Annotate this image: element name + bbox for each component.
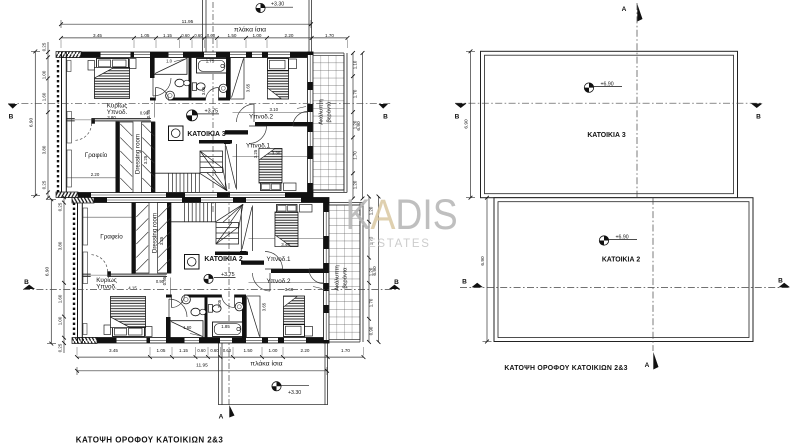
svg-text:3.65: 3.65 bbox=[246, 83, 251, 92]
svg-text:6.90: 6.90 bbox=[372, 266, 378, 276]
svg-text:3.25: 3.25 bbox=[159, 236, 164, 245]
svg-text:ΚΑΤΟΨΗ ΟΡΟΦΟΥ ΚΑΤΟΙΚΙΩΝ 2&3: ΚΑΤΟΨΗ ΟΡΟΦΟΥ ΚΑΤΟΙΚΙΩΝ 2&3 bbox=[76, 436, 224, 445]
svg-text:3.30: 3.30 bbox=[272, 151, 281, 156]
svg-text:A: A bbox=[219, 414, 224, 421]
svg-text:2.20: 2.20 bbox=[91, 172, 100, 177]
svg-text:1.70: 1.70 bbox=[341, 348, 350, 353]
svg-text:B: B bbox=[462, 279, 467, 286]
svg-text:Υπνοδ.2: Υπνοδ.2 bbox=[267, 278, 291, 285]
svg-text:B: B bbox=[394, 279, 399, 286]
svg-text:1.00: 1.00 bbox=[269, 348, 278, 353]
svg-text:3.80: 3.80 bbox=[42, 145, 47, 154]
svg-text:1.60: 1.60 bbox=[42, 92, 47, 101]
svg-text:ESTATES: ESTATES bbox=[368, 238, 431, 250]
svg-text:0.60: 0.60 bbox=[223, 348, 232, 353]
svg-text:B: B bbox=[9, 114, 14, 121]
svg-text:0.60: 0.60 bbox=[181, 33, 190, 38]
svg-text:Ακάλυπτη: Ακάλυπτη bbox=[334, 265, 341, 291]
svg-text:0.90: 0.90 bbox=[369, 326, 374, 335]
svg-text:3.80: 3.80 bbox=[107, 115, 116, 120]
svg-text:2.20: 2.20 bbox=[301, 348, 310, 353]
svg-text:ΚΑΤΟΙΚΙΑ 3: ΚΑΤΟΙΚΙΑ 3 bbox=[187, 131, 226, 138]
svg-text:A: A bbox=[622, 6, 627, 13]
svg-text:1.05: 1.05 bbox=[141, 33, 150, 38]
svg-text:1.85: 1.85 bbox=[221, 324, 230, 329]
svg-text:1.50: 1.50 bbox=[228, 33, 237, 38]
svg-text:B: B bbox=[455, 114, 460, 121]
svg-text:0.90: 0.90 bbox=[140, 111, 149, 116]
svg-text:Ακάλυπτη: Ακάλυπτη bbox=[318, 99, 325, 125]
svg-text:πλάκα ίσια: πλάκα ίσια bbox=[234, 26, 266, 34]
svg-text:3.25: 3.25 bbox=[253, 149, 258, 158]
svg-text:2.20: 2.20 bbox=[285, 33, 294, 38]
svg-text:1.0: 1.0 bbox=[166, 58, 172, 63]
svg-text:Γραφείο: Γραφείο bbox=[85, 151, 108, 159]
svg-text:+3.75: +3.75 bbox=[221, 272, 235, 278]
svg-text:1.15: 1.15 bbox=[163, 33, 172, 38]
svg-text:1.75: 1.75 bbox=[206, 59, 215, 64]
svg-text:1.70: 1.70 bbox=[353, 151, 358, 160]
svg-text:0.25: 0.25 bbox=[58, 202, 63, 211]
svg-text:1.20: 1.20 bbox=[353, 180, 358, 189]
svg-text:6.90: 6.90 bbox=[480, 256, 486, 266]
svg-text:βεράντα: βεράντα bbox=[342, 267, 349, 289]
svg-text:0.25: 0.25 bbox=[42, 42, 47, 51]
svg-text:0.90: 0.90 bbox=[156, 279, 165, 284]
svg-text:ΚΑΤΟΨΗ ΟΡΟΦΟΥ ΚΑΤΟΙΚΙΩΝ 2&3: ΚΑΤΟΨΗ ΟΡΟΦΟΥ ΚΑΤΟΙΚΙΩΝ 2&3 bbox=[504, 365, 627, 372]
svg-text:B: B bbox=[778, 278, 783, 285]
svg-text:6.90: 6.90 bbox=[29, 118, 35, 128]
svg-text:1.70: 1.70 bbox=[353, 89, 358, 98]
svg-text:Γραφείο: Γραφείο bbox=[100, 233, 123, 241]
svg-text:1.00: 1.00 bbox=[253, 33, 262, 38]
svg-text:11.95: 11.95 bbox=[196, 363, 208, 369]
svg-text:+3.30: +3.30 bbox=[271, 2, 284, 8]
svg-text:B: B bbox=[24, 279, 29, 286]
svg-text:1.50: 1.50 bbox=[244, 348, 253, 353]
svg-text:1.60: 1.60 bbox=[58, 294, 63, 303]
svg-text:1.00: 1.00 bbox=[58, 316, 63, 325]
svg-text:+3.75: +3.75 bbox=[205, 109, 219, 115]
svg-text:3.45: 3.45 bbox=[109, 348, 118, 353]
svg-text:A: A bbox=[645, 362, 650, 369]
svg-text:3.45: 3.45 bbox=[93, 33, 102, 38]
svg-text:1.60: 1.60 bbox=[183, 325, 192, 330]
svg-text:1.15: 1.15 bbox=[179, 348, 188, 353]
svg-text:Υπνοδ.1: Υπνοδ.1 bbox=[267, 256, 291, 263]
svg-text:3.05: 3.05 bbox=[217, 299, 222, 308]
svg-text:+6.90: +6.90 bbox=[616, 235, 629, 241]
svg-text:6.90: 6.90 bbox=[356, 121, 362, 131]
svg-text:1.70: 1.70 bbox=[325, 33, 334, 38]
svg-text:πλάκα ίσια: πλάκα ίσια bbox=[250, 360, 282, 368]
svg-text:0.60: 0.60 bbox=[207, 33, 216, 38]
svg-text:ΚΑΤΟΙΚΙΑ 2: ΚΑΤΟΙΚΙΑ 2 bbox=[204, 256, 243, 263]
svg-text:3.80: 3.80 bbox=[58, 241, 63, 250]
svg-text:6.90: 6.90 bbox=[45, 267, 51, 277]
svg-text:3.65: 3.65 bbox=[262, 302, 267, 311]
svg-text:1.00: 1.00 bbox=[42, 70, 47, 79]
svg-text:KADIS: KADIS bbox=[346, 192, 458, 239]
svg-text:Υπνοδ.1: Υπνοδ.1 bbox=[246, 143, 270, 150]
svg-text:0.60: 0.60 bbox=[197, 348, 206, 353]
svg-text:11.95: 11.95 bbox=[182, 19, 194, 25]
svg-text:βεράντα: βεράντα bbox=[326, 101, 333, 123]
svg-text:Dressing room: Dressing room bbox=[135, 134, 142, 174]
svg-text:B: B bbox=[756, 114, 761, 121]
svg-text:1.10: 1.10 bbox=[353, 60, 358, 69]
svg-text:+3.30: +3.30 bbox=[288, 390, 301, 396]
svg-text:ΚΑΤΟΙΚΙΑ 2: ΚΑΤΟΙΚΙΑ 2 bbox=[602, 257, 641, 264]
svg-text:3.05: 3.05 bbox=[201, 86, 206, 95]
svg-text:3.25: 3.25 bbox=[143, 155, 148, 164]
svg-text:Υπνοδ.2: Υπνοδ.2 bbox=[249, 113, 273, 120]
svg-text:+6.90: +6.90 bbox=[601, 82, 614, 88]
svg-text:B: B bbox=[383, 114, 388, 121]
svg-text:6.90: 6.90 bbox=[464, 119, 470, 129]
svg-text:Dressing room: Dressing room bbox=[152, 213, 159, 253]
svg-text:0.25: 0.25 bbox=[58, 343, 63, 352]
svg-text:1.70: 1.70 bbox=[369, 298, 374, 307]
svg-text:3.40: 3.40 bbox=[281, 242, 290, 247]
svg-text:ΚΑΤΟΙΚΙΑ 3: ΚΑΤΟΙΚΙΑ 3 bbox=[587, 132, 626, 139]
svg-text:0.60: 0.60 bbox=[194, 33, 203, 38]
svg-text:1.05: 1.05 bbox=[157, 348, 166, 353]
svg-text:0.25: 0.25 bbox=[42, 180, 47, 189]
svg-text:0.60: 0.60 bbox=[210, 348, 219, 353]
svg-text:3.10: 3.10 bbox=[270, 107, 279, 112]
